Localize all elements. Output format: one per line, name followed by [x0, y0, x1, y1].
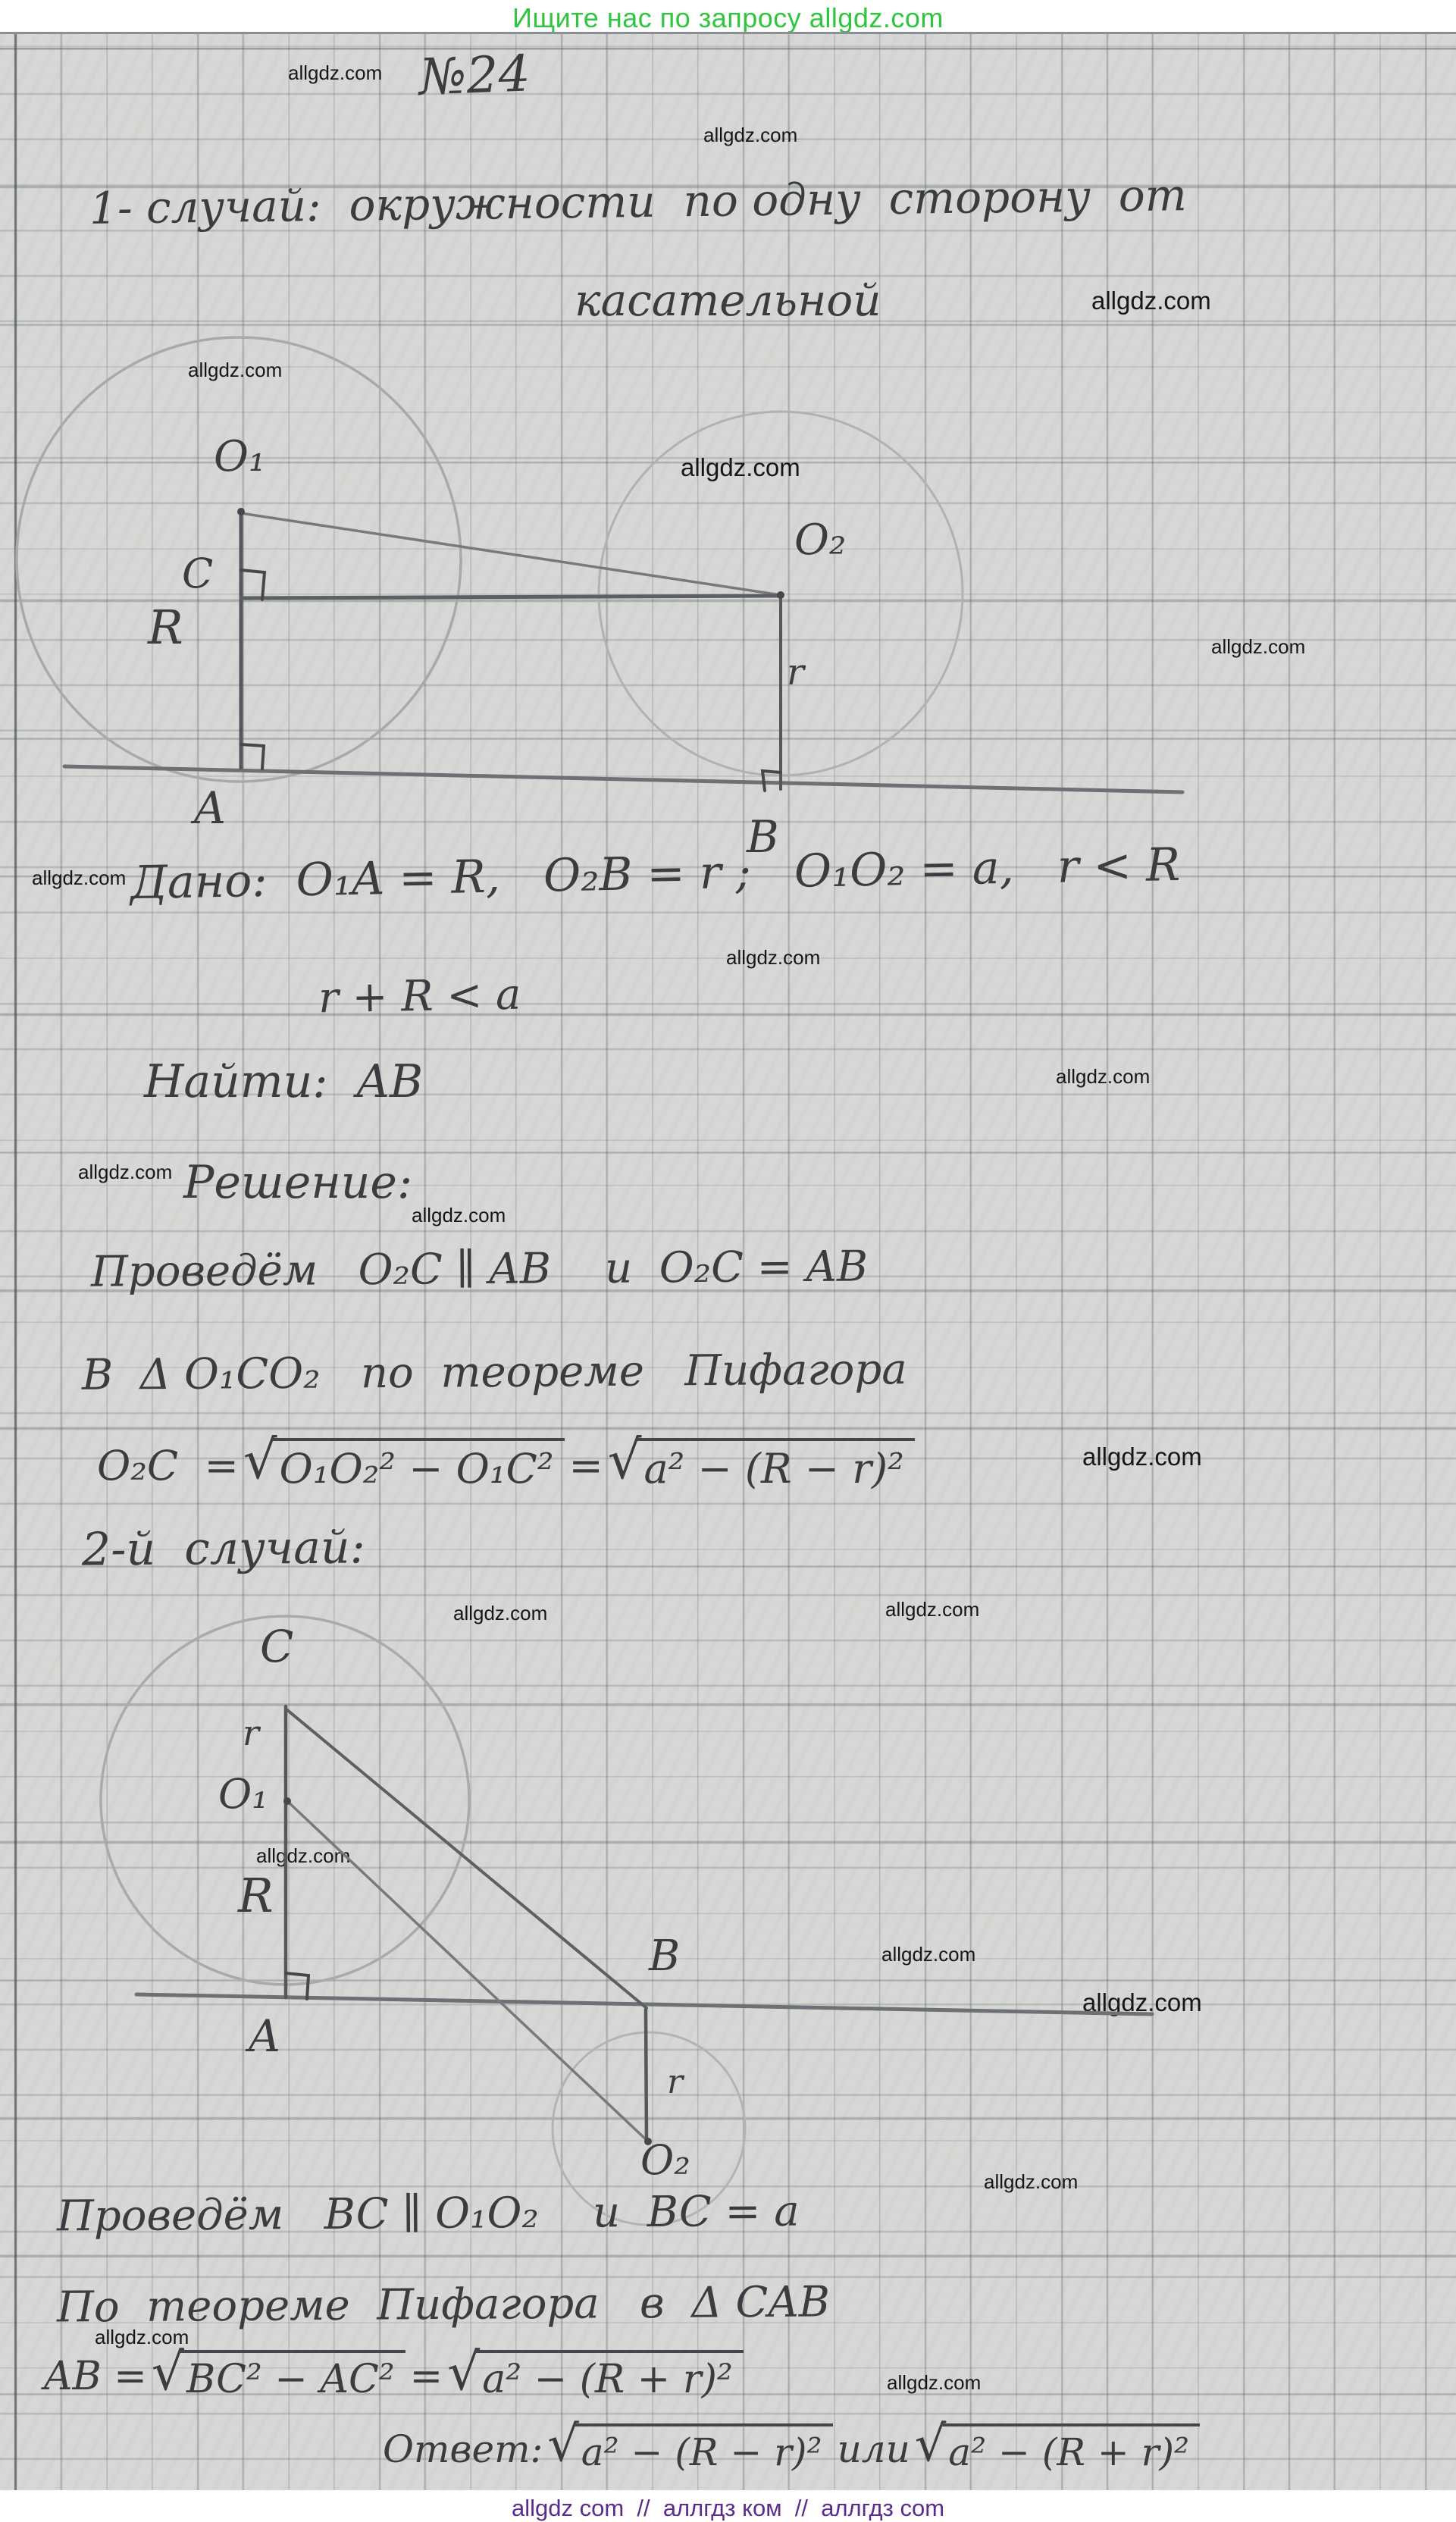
- answer-line: Ответ: √a² − (R − r)² или √a² − (R + r)²: [383, 2423, 1204, 2474]
- answer-label: Ответ:: [383, 2427, 543, 2471]
- diagram2-label-O1: O₁: [218, 1774, 268, 1815]
- header-strip: Ищите нас по запросу allgdz.com: [0, 0, 1456, 32]
- case1-title-line1: 1- случай: окружности по одну сторону от: [89, 173, 1187, 230]
- case1-formula: O₂C = √O₁O₂² − O₁C² = √a² − (R − r)²: [97, 1438, 919, 1493]
- formula-lhs: O₂C =: [97, 1442, 239, 1490]
- diagram2-label-R: R: [238, 1872, 274, 1919]
- radicand: a² − (R − r)²: [636, 1438, 914, 1493]
- case2-formula: AB = √BC² − AC² = √a² − (R + r)²: [44, 2350, 748, 2402]
- sqrt-expression: √a² − (R + r)²: [915, 2423, 1200, 2474]
- center-dot-O2: [777, 591, 784, 599]
- radicand: a² − (R + r)²: [941, 2423, 1200, 2474]
- watermark-text: allgdz.com: [703, 124, 797, 147]
- circle-radius-R: [17, 337, 461, 782]
- watermark-text: allgdz.com: [412, 1204, 506, 1227]
- watermark-text: allgdz.com: [32, 866, 126, 890]
- equals-sign: =: [569, 1442, 603, 1490]
- sqrt-expression: √a² − (R − r)²: [547, 2423, 832, 2474]
- case2-step1: Проведём BC ∥ O₁O₂ и BC = a: [57, 2191, 800, 2238]
- segment-O1O2: [287, 1801, 648, 2141]
- sqrt-expression: √O₁O₂² − O₁C²: [243, 1438, 565, 1493]
- right-angle-mark-A: [286, 1973, 308, 1999]
- equals-sign: =: [410, 2354, 443, 2399]
- diagram2-label-O2: O₂: [640, 2140, 690, 2181]
- notebook-paper: allgdz.com allgdz.com allgdz.com allgdz.…: [0, 32, 1456, 2492]
- diagram2-label-C: C: [260, 1624, 293, 1668]
- tangent-line: [64, 766, 1182, 792]
- formula-lhs: AB =: [44, 2354, 147, 2399]
- watermark-text: allgdz.com: [726, 946, 820, 970]
- case1-step1: Проведём O₂C ∥ AB и O₂C = AB: [91, 1245, 868, 1293]
- watermark-text: allgdz.com: [1082, 1443, 1202, 1471]
- diagram1-label-R: R: [148, 604, 183, 651]
- problem-number: №24: [418, 49, 531, 102]
- diagram1-label-A: A: [194, 786, 226, 830]
- case2-step2: По теореме Пифагора в Δ CAB: [57, 2281, 830, 2329]
- watermark-text: allgdz.com: [78, 1161, 172, 1184]
- segment-CB: [287, 1709, 647, 2008]
- diagram2-label-r-bottom: r: [667, 2066, 683, 2099]
- diagram2-label-A: A: [249, 2014, 280, 2058]
- watermark-text: allgdz.com: [1056, 1065, 1150, 1089]
- center-dot-O1: [237, 508, 245, 515]
- sqrt-expression: √BC² − AC²: [152, 2350, 405, 2402]
- diagram2-label-r-top: r: [243, 1715, 259, 1750]
- radicand: BC² − AC²: [179, 2350, 405, 2402]
- diagram1-label-O1: O₁: [214, 436, 265, 478]
- diagram1-label-O2: O₂: [794, 519, 846, 562]
- case1-find-line: Найти: AB: [144, 1059, 423, 1104]
- footer-strip: allgdz com // аллгдз ком // аллгдз com: [0, 2490, 1456, 2522]
- diagram1-label-C: C: [182, 553, 213, 594]
- radicand: a² − (R − r)²: [574, 2423, 833, 2474]
- right-angle-mark-C: [241, 570, 265, 600]
- case1-given-line2: r + R < a: [318, 974, 521, 1020]
- segment-BO2: [646, 2010, 647, 2141]
- diagram2-label-B: B: [649, 1935, 680, 1978]
- answer-or: или: [838, 2427, 910, 2471]
- right-angle-mark-A: [241, 744, 264, 769]
- radicand: O₁O₂² − O₁C²: [272, 1438, 565, 1493]
- watermark-text: allgdz.com: [887, 2371, 981, 2395]
- scanned-notebook-page: Ищите нас по запросу allgdz.com allgdz.c…: [0, 0, 1456, 2522]
- segment-CO2: [241, 596, 781, 598]
- sqrt-expression: √a² − (R − r)²: [608, 1438, 915, 1493]
- case1-step2: В Δ O₁CO₂ по теореме Пифагора: [82, 1349, 907, 1397]
- footer-promo-text: allgdz com // аллгдз ком // аллгдз com: [512, 2495, 944, 2522]
- segment-O1O2: [241, 513, 781, 595]
- watermark-text: allgdz.com: [288, 61, 382, 85]
- header-promo-text: Ищите нас по запросу allgdz.com: [512, 2, 944, 34]
- radicand: a² − (R + r)²: [474, 2350, 744, 2402]
- diagram1-label-r: r: [787, 654, 804, 691]
- sqrt-expression: √a² − (R + r)²: [447, 2350, 744, 2402]
- case1-solution-label: Решение:: [183, 1160, 412, 1205]
- center-dot-O1: [283, 1797, 291, 1805]
